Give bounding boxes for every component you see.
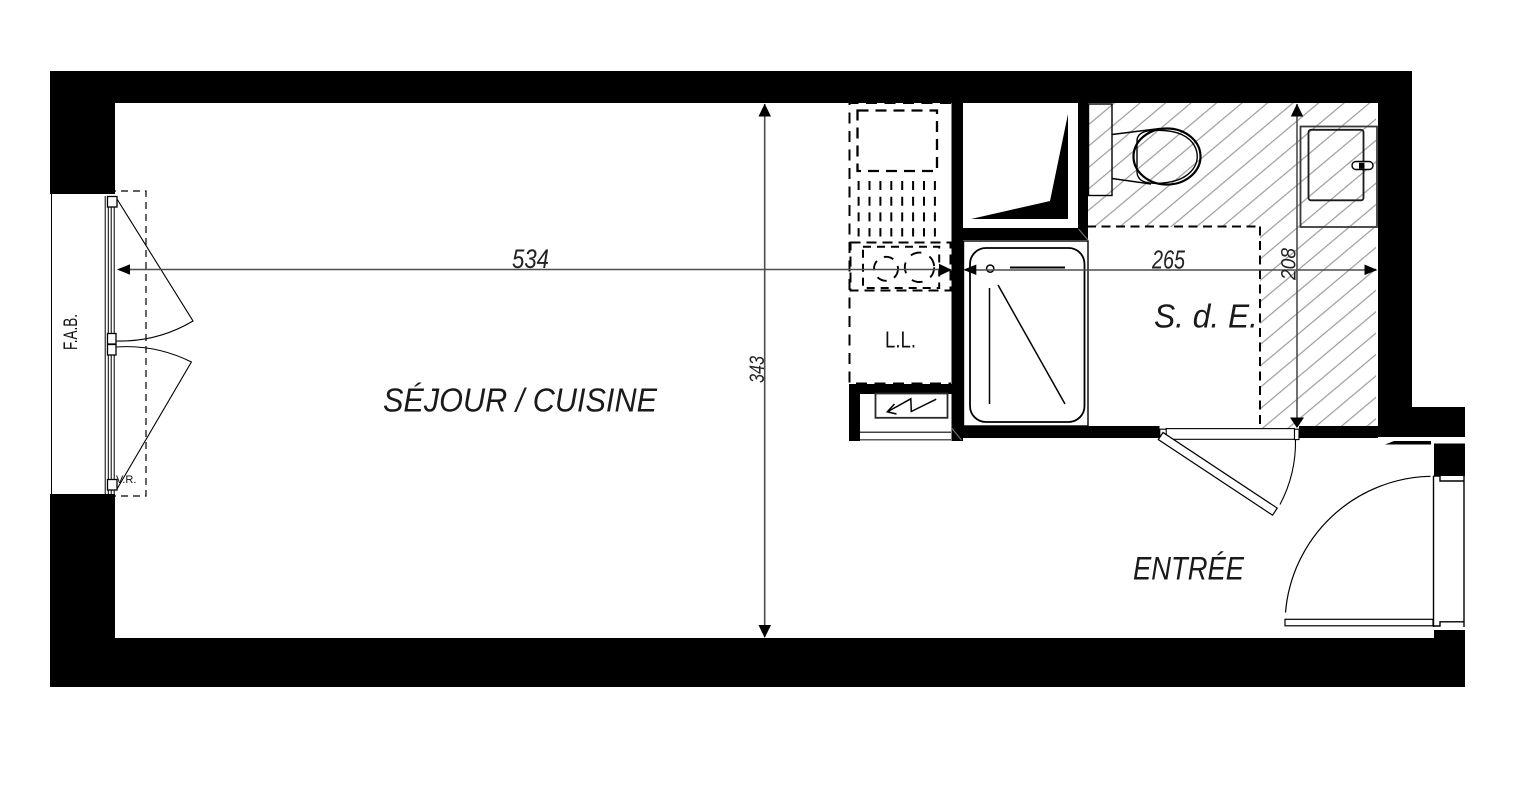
svg-text:SÉJOUR / CUISINE: SÉJOUR / CUISINE [383,382,658,419]
svg-text:ENTRÉE: ENTRÉE [1133,551,1245,587]
svg-text:265: 265 [1151,245,1185,275]
svg-text:L.L.: L.L. [885,327,916,353]
svg-text:S. d. E.: S. d. E. [1154,298,1258,335]
svg-text:V.R.: V.R. [116,474,136,486]
svg-text:F.A.B.: F.A.B. [61,314,82,350]
svg-text:208: 208 [1278,248,1301,281]
svg-text:534: 534 [512,244,549,274]
svg-text:343: 343 [746,356,769,383]
